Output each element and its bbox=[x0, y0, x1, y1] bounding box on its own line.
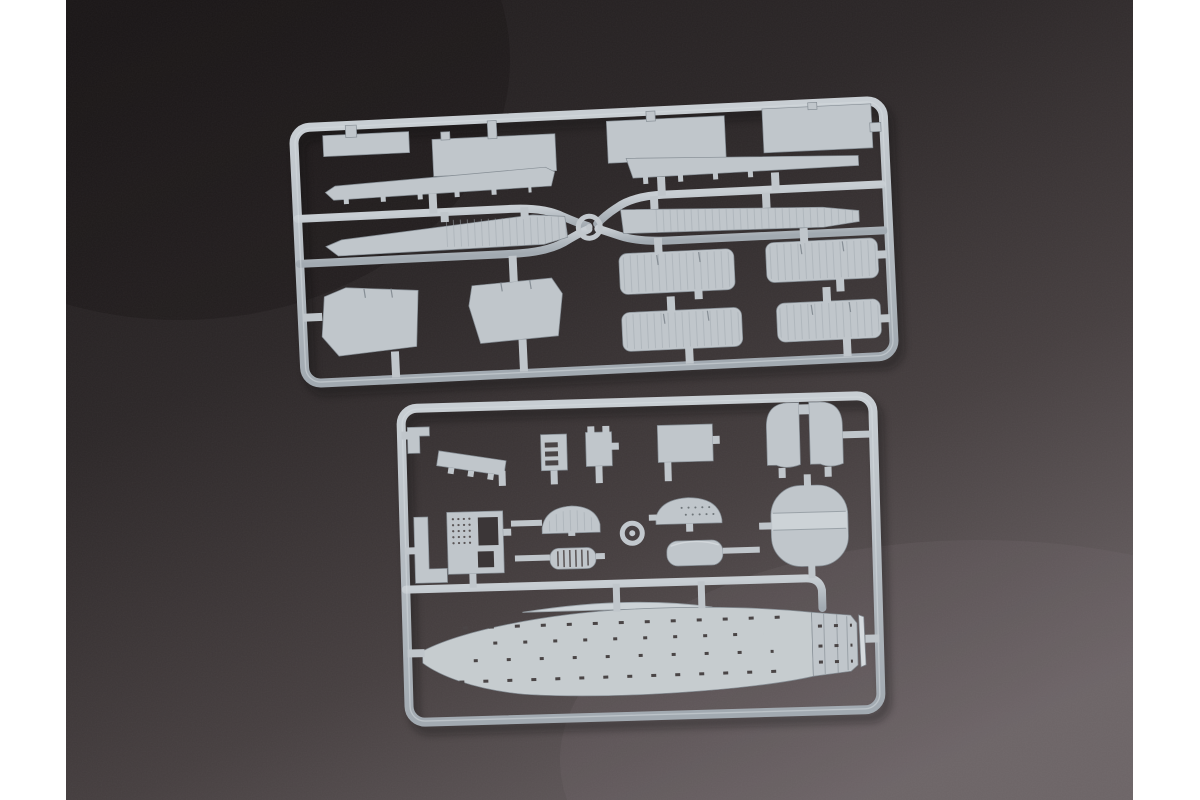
photo-area bbox=[0, 0, 1200, 800]
photo bbox=[0, 0, 1200, 800]
screenshot-stage bbox=[0, 0, 1200, 800]
pillarbox-right bbox=[1133, 0, 1200, 800]
pillarbox-left bbox=[0, 0, 67, 800]
